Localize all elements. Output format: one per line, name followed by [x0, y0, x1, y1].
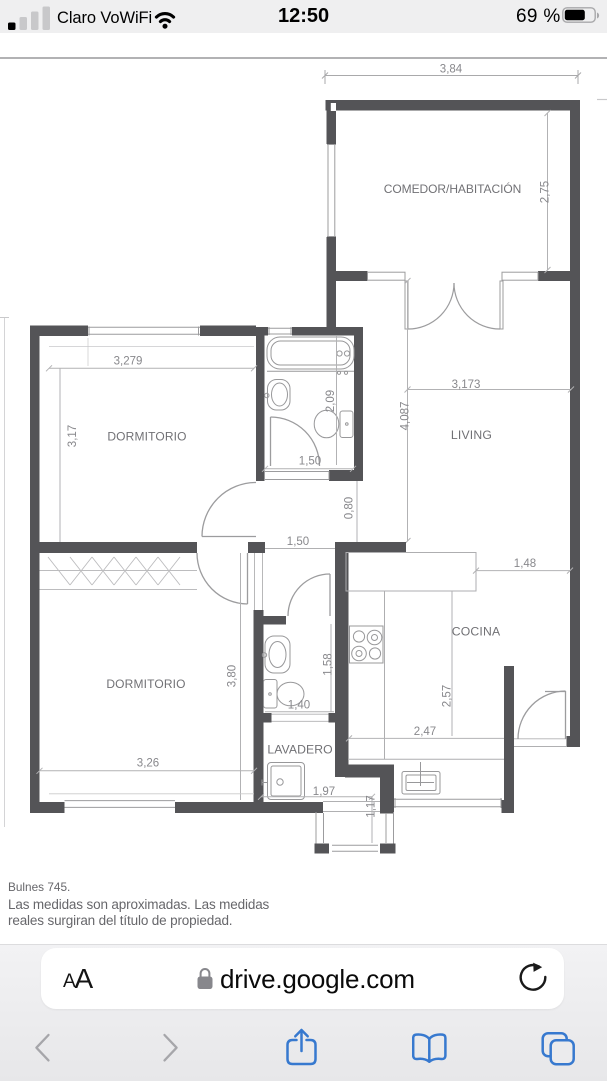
svg-text:DORMITORIO: DORMITORIO: [107, 430, 186, 444]
svg-text:0,80: 0,80: [344, 497, 356, 519]
svg-text:3,84: 3,84: [440, 64, 463, 76]
svg-text:2,57: 2,57: [442, 685, 454, 707]
svg-text:2,09: 2,09: [325, 390, 337, 412]
svg-text:LAVADERO: LAVADERO: [267, 743, 332, 757]
svg-text:1,50: 1,50: [299, 456, 321, 468]
svg-text:COMEDOR/HABITACIÓN: COMEDOR/HABITACIÓN: [384, 181, 522, 196]
svg-text:1,40: 1,40: [288, 700, 310, 712]
svg-text:2,47: 2,47: [414, 726, 436, 738]
svg-text:1,50: 1,50: [287, 536, 309, 548]
svg-text:4,087: 4,087: [400, 402, 412, 431]
svg-text:1,17: 1,17: [366, 795, 378, 817]
svg-text:3,17: 3,17: [67, 425, 79, 447]
svg-text:3,173: 3,173: [452, 379, 481, 391]
svg-text:COCINA: COCINA: [452, 625, 501, 639]
svg-text:3,26: 3,26: [137, 758, 159, 770]
svg-text:3,279: 3,279: [114, 356, 143, 368]
svg-text:3,80: 3,80: [227, 665, 239, 687]
svg-text:1,58: 1,58: [323, 653, 335, 675]
svg-text:DORMITORIO: DORMITORIO: [106, 677, 185, 691]
svg-text:2,75: 2,75: [540, 181, 552, 203]
svg-text:1,97: 1,97: [313, 786, 335, 798]
svg-text:LIVING: LIVING: [451, 428, 492, 442]
svg-text:1,48: 1,48: [514, 558, 536, 570]
